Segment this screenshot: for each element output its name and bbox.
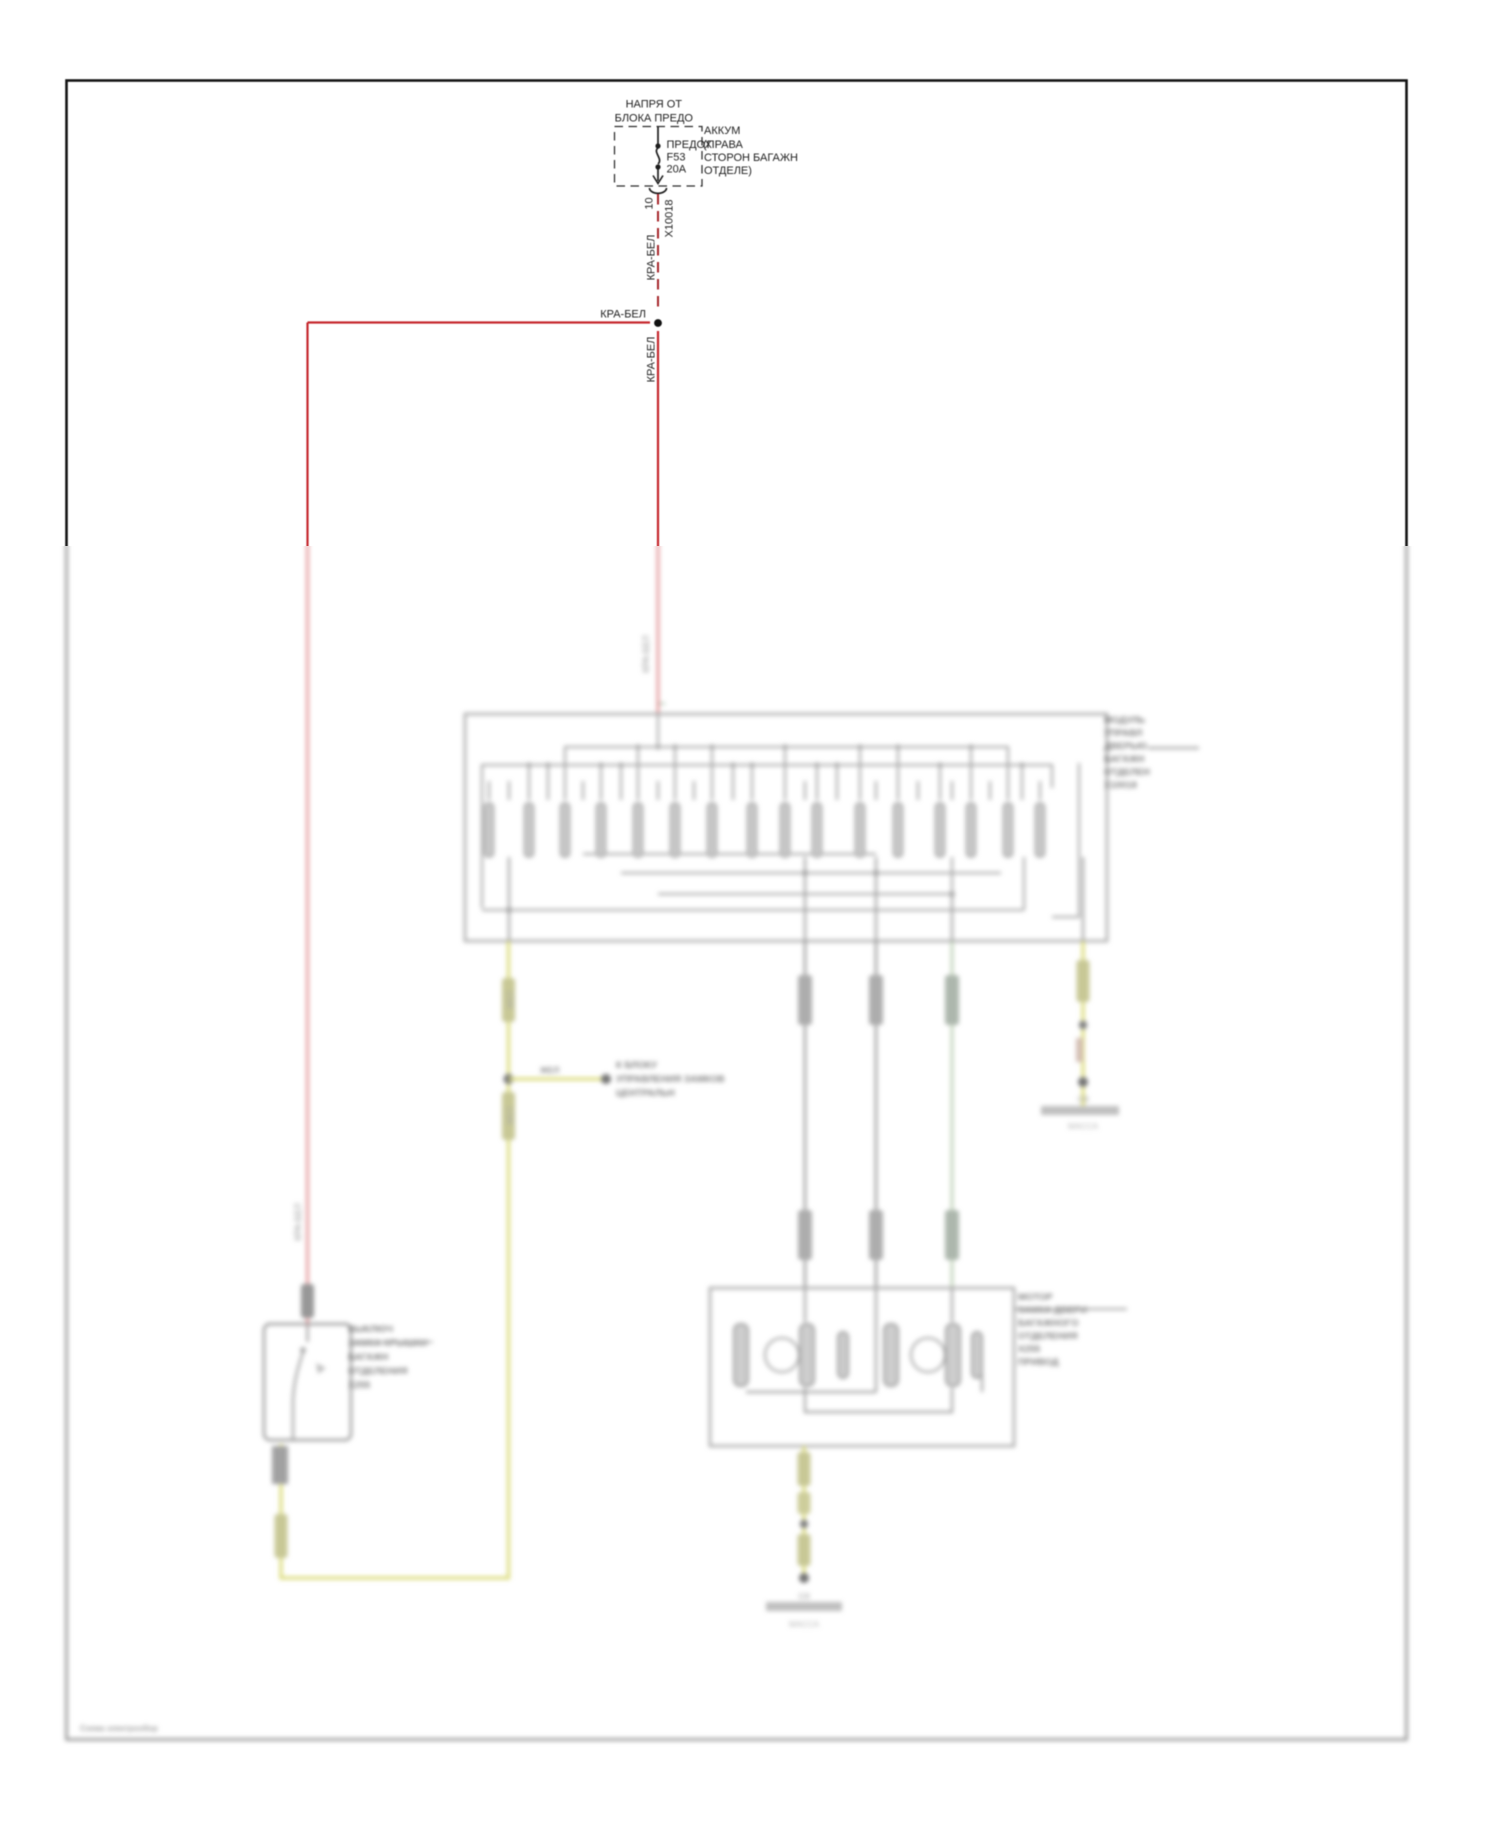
svg-text:G9: G9 (1077, 1094, 1089, 1104)
svg-text:БАГАЖНОГО: БАГАЖНОГО (1018, 1318, 1078, 1329)
svg-text:3: 3 (658, 701, 667, 706)
svg-text:НАПРЯ ОТ: НАПРЯ ОТ (626, 99, 683, 111)
svg-text:УПРАВЛ: УПРАВЛ (1104, 728, 1143, 739)
svg-text:МАССА: МАССА (789, 1619, 820, 1629)
svg-text:ЦЕНТРАЛЬН: ЦЕНТРАЛЬН (616, 1088, 675, 1099)
svg-text:(ПРАВА: (ПРАВА (703, 139, 743, 151)
svg-text:X10018: X10018 (1104, 780, 1137, 791)
svg-text:F53: F53 (667, 151, 686, 163)
svg-text:МОТОР: МОТОР (1018, 1292, 1053, 1303)
svg-text:ЖЕЛ: ЖЕЛ (506, 1107, 515, 1125)
svg-text:СТОРОН БАГАЖН: СТОРОН БАГАЖН (704, 152, 798, 164)
svg-text:X255: X255 (348, 1380, 371, 1391)
svg-text:ПРИВОД: ПРИВОД (1018, 1357, 1059, 1368)
svg-text:ЗАМКА ДВЕРИ: ЗАМКА ДВЕРИ (1018, 1305, 1087, 1316)
svg-text:X255: X255 (1018, 1344, 1041, 1355)
svg-text:ОТДЕЛЕНИЯ: ОТДЕЛЕНИЯ (348, 1366, 408, 1377)
svg-text:К БЛОКУ: К БЛОКУ (616, 1060, 657, 1071)
svg-text:КРА-БЕЛ: КРА-БЕЛ (646, 235, 658, 281)
svg-text:АККУМ: АККУМ (704, 125, 740, 137)
svg-text:G9: G9 (798, 1591, 810, 1601)
svg-text:БАГАЖН: БАГАЖН (348, 1352, 389, 1363)
svg-text:КРА-БЕЛ: КРА-БЕЛ (641, 635, 651, 673)
svg-text:БЛОКА ПРЕДО: БЛОКА ПРЕДО (615, 112, 694, 124)
svg-text:ЗАМКА КРЫШКИ: ЗАМКА КРЫШКИ (348, 1338, 428, 1349)
svg-text:ОТДЕЛЕ): ОТДЕЛЕ) (704, 165, 752, 177)
svg-text:ЖЕЛ: ЖЕЛ (506, 991, 515, 1009)
svg-text:Схема электрообор: Схема электрообор (80, 1724, 158, 1733)
svg-text:КРА-БЕЛ: КРА-БЕЛ (600, 309, 646, 321)
svg-text:ВЫКЛЮЧ: ВЫКЛЮЧ (348, 1324, 393, 1335)
svg-text:ОТДЕЛЕНИЯ: ОТДЕЛЕНИЯ (1018, 1331, 1078, 1342)
svg-text:10: 10 (644, 197, 656, 209)
svg-text:КРА-БЕЛ: КРА-БЕЛ (646, 337, 658, 383)
svg-text:ДВЕРЬЮ: ДВЕРЬЮ (1104, 741, 1147, 752)
svg-text:20A: 20A (667, 164, 687, 176)
svg-text:КРА-БЕЛ: КРА-БЕЛ (293, 1203, 303, 1241)
svg-text:МОДУЛЬ: МОДУЛЬ (1104, 715, 1145, 726)
svg-text:ЖЕЛ: ЖЕЛ (539, 1065, 559, 1075)
svg-text:ОТДЕЛЕН: ОТДЕЛЕН (1104, 767, 1150, 778)
svg-text:УПРАВЛЕНИЯ ЗАМКОВ: УПРАВЛЕНИЯ ЗАМКОВ (616, 1074, 725, 1085)
svg-text:БАГАЖН: БАГАЖН (1104, 754, 1145, 765)
svg-text:X10018: X10018 (664, 200, 676, 238)
svg-text:МАССА: МАССА (1068, 1121, 1099, 1131)
